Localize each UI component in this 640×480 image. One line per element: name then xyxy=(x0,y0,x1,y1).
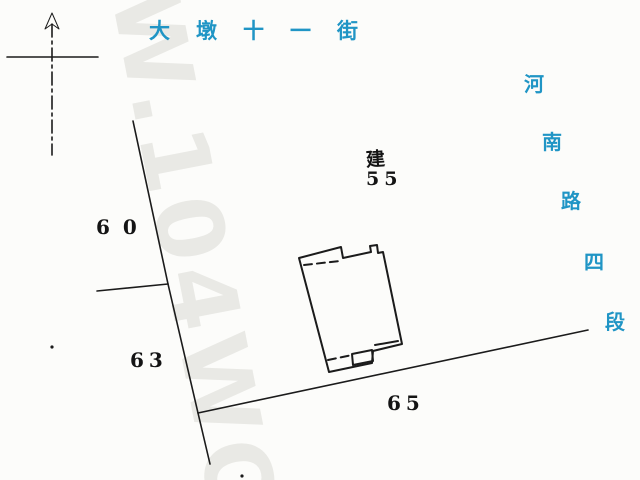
road-label-right-char: 河 xyxy=(524,68,544,97)
cadastral-map: W.104WO 大墩十一街 河 南 路 四 段 60 63 65 xyxy=(0,0,640,480)
building-marker-character: 建 xyxy=(365,149,403,171)
north-arrow-icon xyxy=(7,13,98,155)
survey-point-dot xyxy=(50,345,53,348)
building-main-outline xyxy=(299,245,402,372)
building-dashed-line-bottom xyxy=(328,355,352,360)
map-line-drawing xyxy=(0,0,640,480)
building-step-line xyxy=(375,341,398,345)
building-dashed-line-top xyxy=(304,261,340,265)
road-label-right-char: 段 xyxy=(605,306,625,335)
building-label: 建 55 xyxy=(366,150,402,190)
road-label-right-char: 路 xyxy=(561,185,581,214)
parcel-number-60: 60 xyxy=(96,215,150,239)
road-label-right-char: 四 xyxy=(584,246,604,275)
parcel-number-65: 65 xyxy=(387,391,425,415)
building-lot-number: 55 xyxy=(366,170,402,190)
parcel-number-63: 63 xyxy=(130,348,168,372)
survey-point-dot xyxy=(240,474,243,477)
parcel-boundary-branch xyxy=(97,284,168,291)
building-outline xyxy=(299,245,402,372)
street-label-top: 大墩十一街 xyxy=(149,15,384,45)
road-label-right-char: 南 xyxy=(542,126,562,155)
